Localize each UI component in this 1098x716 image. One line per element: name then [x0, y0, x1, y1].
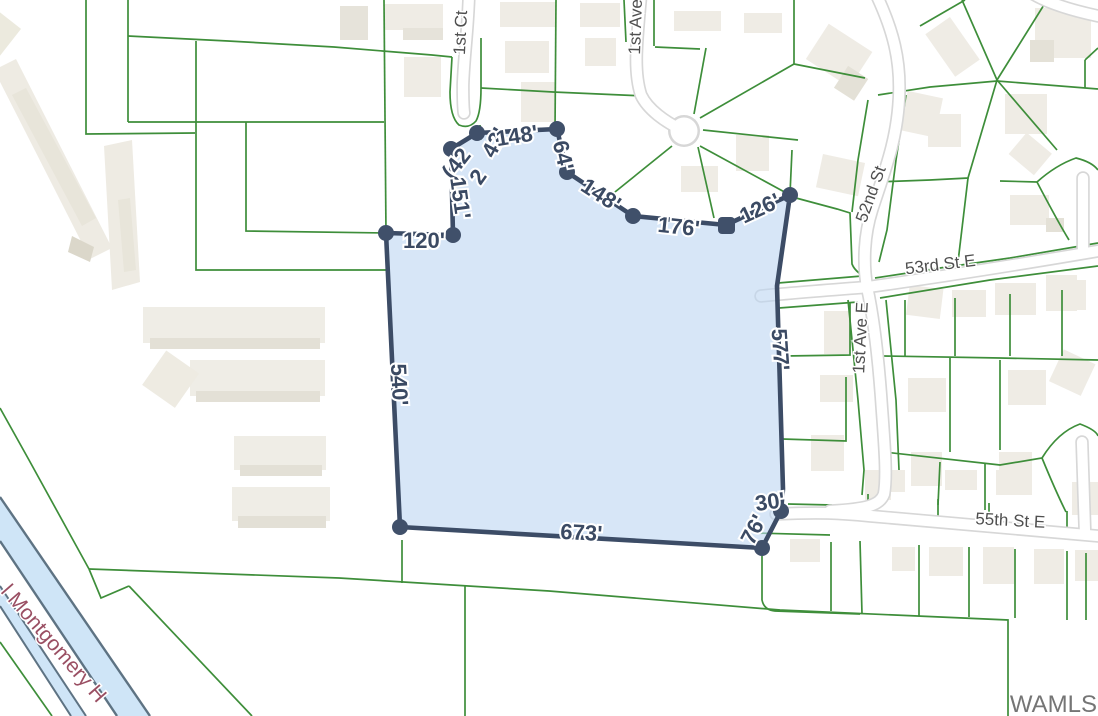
svg-text:1st Ave: 1st Ave: [625, 0, 646, 55]
svg-text:55th St E: 55th St E: [975, 509, 1046, 532]
svg-text:673': 673': [560, 519, 603, 546]
svg-text:540': 540': [386, 363, 413, 406]
svg-text:176': 176': [657, 212, 701, 241]
svg-text:120': 120': [403, 228, 445, 253]
svg-text:1st Ave E: 1st Ave E: [849, 302, 872, 374]
svg-text:577': 577': [767, 328, 795, 372]
svg-text:30': 30': [754, 487, 787, 516]
svg-text:1st Ct: 1st Ct: [450, 10, 471, 56]
svg-text:WAMLS: WAMLS: [1010, 691, 1097, 716]
